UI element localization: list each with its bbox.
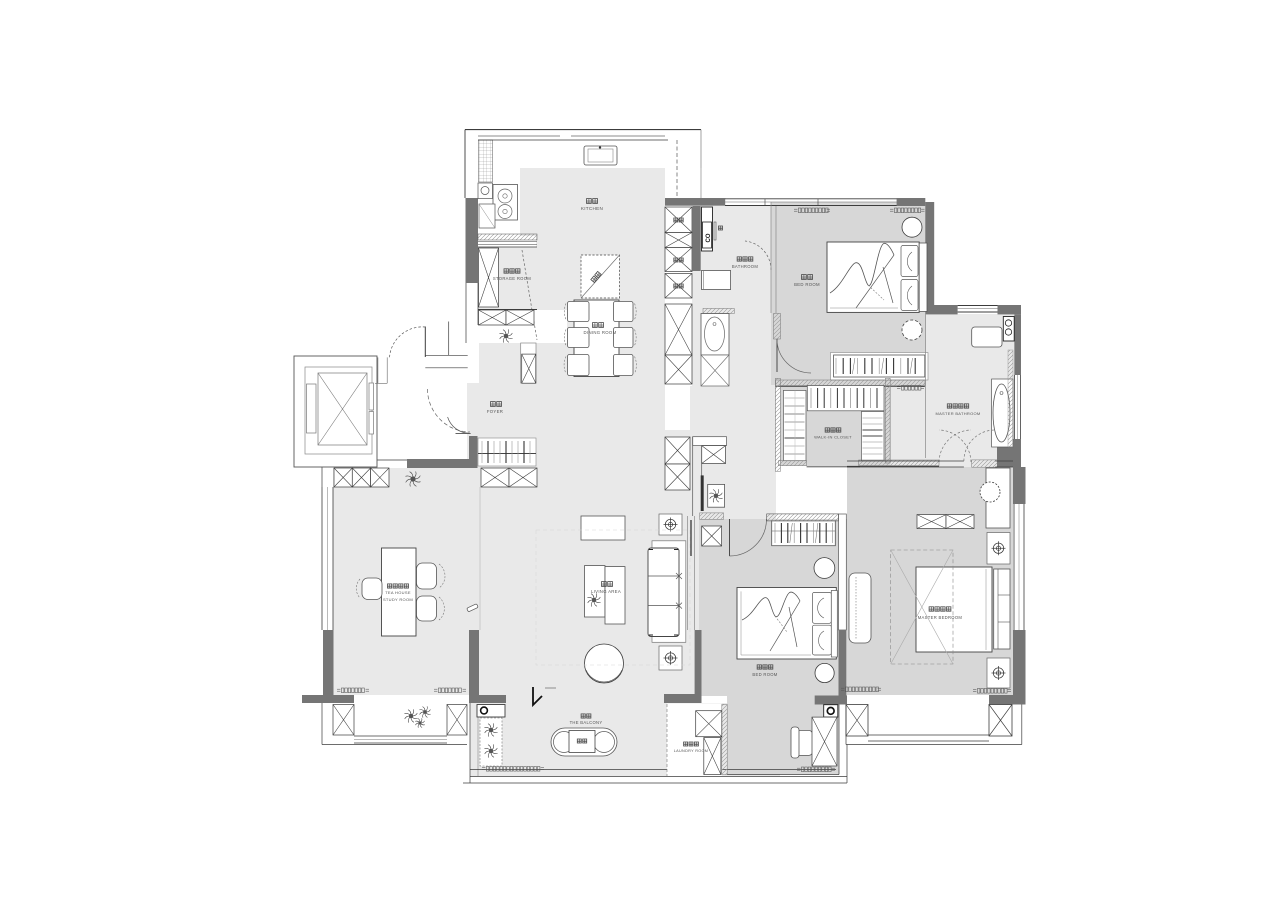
svg-text:BED ROOM: BED ROOM bbox=[752, 672, 777, 677]
svg-text:STUDY ROOM: STUDY ROOM bbox=[383, 597, 413, 602]
svg-text:LIVING AREA: LIVING AREA bbox=[591, 589, 621, 594]
svg-text:THE BALCONY: THE BALCONY bbox=[570, 720, 603, 725]
svg-text:MASTER BEDROOM: MASTER BEDROOM bbox=[918, 615, 963, 620]
svg-text:BED ROOM: BED ROOM bbox=[794, 282, 820, 287]
svg-text:MASTER BATHROOM: MASTER BATHROOM bbox=[935, 411, 980, 416]
svg-text:WALK-IN CLOSET: WALK-IN CLOSET bbox=[814, 435, 852, 440]
svg-text:BATHROOM: BATHROOM bbox=[732, 264, 758, 269]
svg-text:CO: CO bbox=[706, 233, 712, 242]
svg-text:TEA HOUSE: TEA HOUSE bbox=[385, 590, 411, 595]
svg-text:DINING ROOM: DINING ROOM bbox=[584, 330, 617, 335]
svg-text:KITCHEN: KITCHEN bbox=[581, 206, 603, 211]
svg-text:FOYER: FOYER bbox=[487, 409, 503, 414]
svg-text:LAUNDRY ROOM: LAUNDRY ROOM bbox=[674, 749, 708, 753]
svg-text:STORAGE ROOM: STORAGE ROOM bbox=[493, 276, 531, 281]
